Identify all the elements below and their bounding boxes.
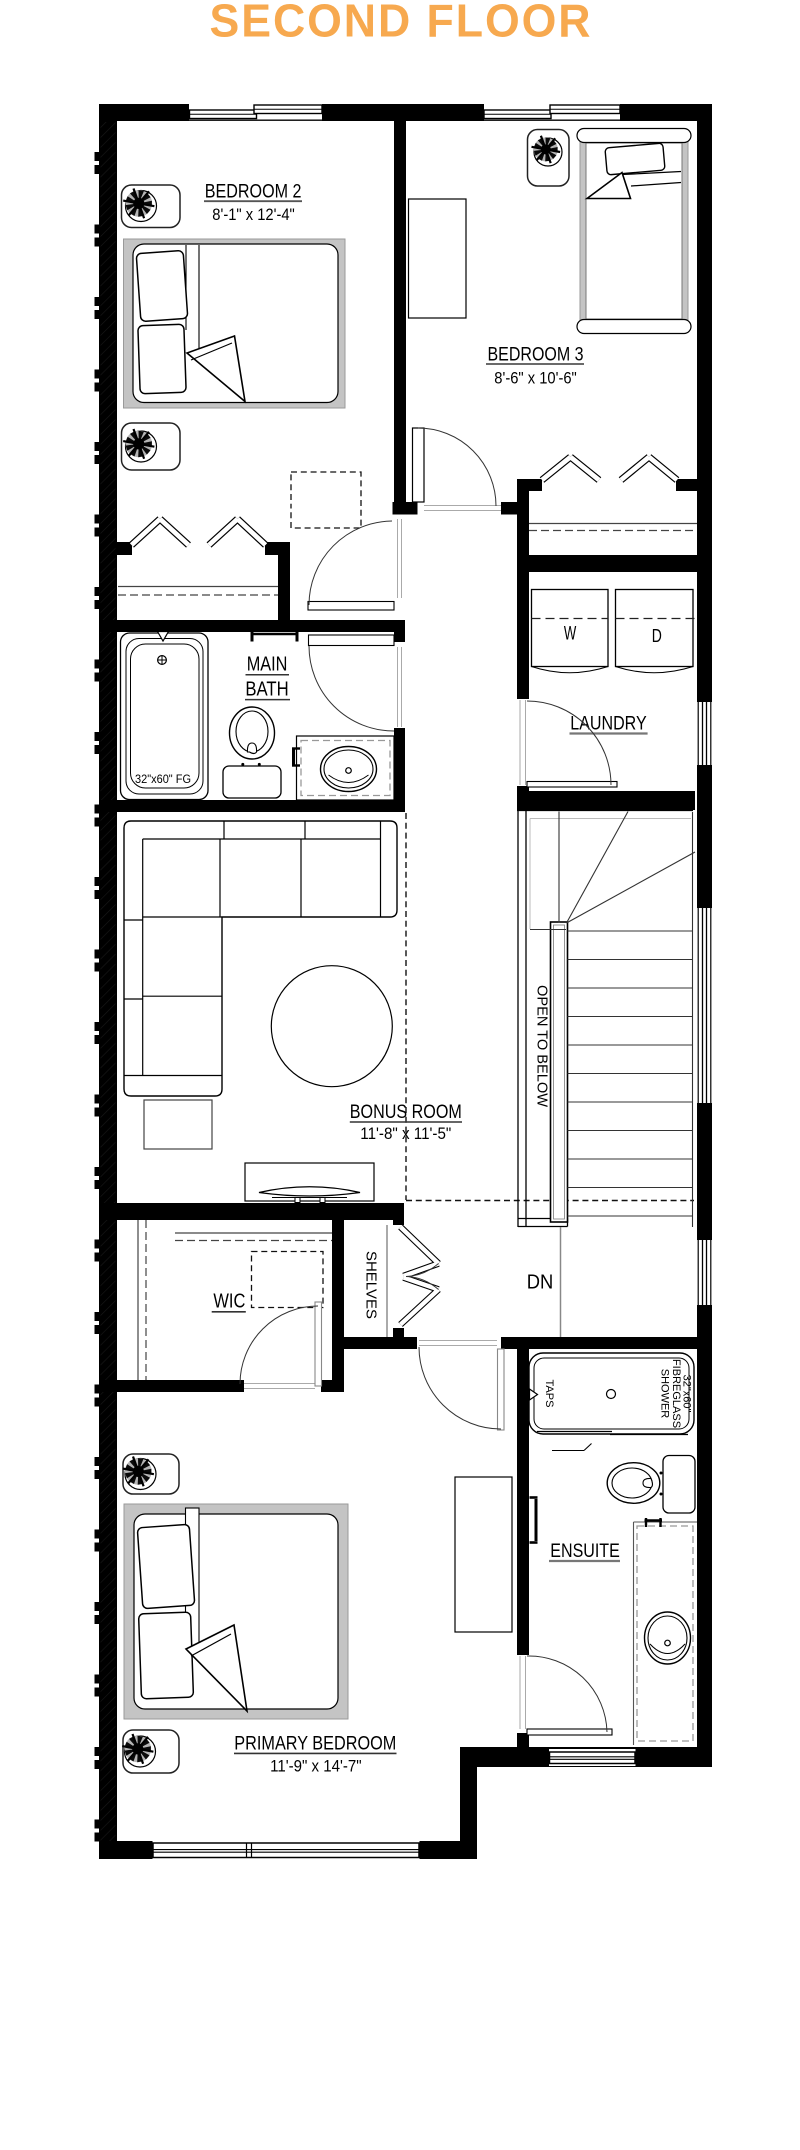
svg-text:SHOWER: SHOWER — [659, 1369, 671, 1419]
svg-text:WIC: WIC — [213, 1291, 245, 1313]
svg-text:TAPS: TAPS — [543, 1380, 555, 1408]
svg-text:BATH: BATH — [245, 679, 288, 701]
svg-text:PRIMARY BEDROOM: PRIMARY BEDROOM — [234, 1733, 396, 1754]
svg-text:W: W — [564, 624, 576, 645]
svg-text:BONUS ROOM: BONUS ROOM — [350, 1102, 462, 1123]
svg-text:BEDROOM 3: BEDROOM 3 — [488, 344, 584, 365]
svg-text:8'-1" x 12'-4": 8'-1" x 12'-4" — [212, 206, 295, 224]
svg-text:ENSUITE: ENSUITE — [550, 1541, 620, 1562]
svg-text:FIBREGLASS: FIBREGLASS — [670, 1359, 682, 1428]
svg-text:MAIN: MAIN — [247, 654, 288, 676]
svg-text:11'-9" x 14'-7": 11'-9" x 14'-7" — [270, 1757, 362, 1775]
svg-text:D: D — [652, 626, 662, 646]
svg-text:11'-8" x 11'-5": 11'-8" x 11'-5" — [360, 1125, 451, 1143]
svg-text:BEDROOM 2: BEDROOM 2 — [205, 182, 302, 203]
svg-text:SECOND FLOOR: SECOND FLOOR — [210, 0, 593, 47]
svg-text:32"x60" FG: 32"x60" FG — [135, 774, 191, 786]
svg-text:LAUNDRY: LAUNDRY — [570, 713, 647, 734]
svg-text:DN: DN — [527, 1271, 554, 1294]
svg-text:8'-6" x 10'-6": 8'-6" x 10'-6" — [494, 370, 577, 388]
svg-text:OPEN TO BELOW: OPEN TO BELOW — [534, 985, 551, 1108]
svg-text:SHELVES: SHELVES — [363, 1251, 380, 1319]
